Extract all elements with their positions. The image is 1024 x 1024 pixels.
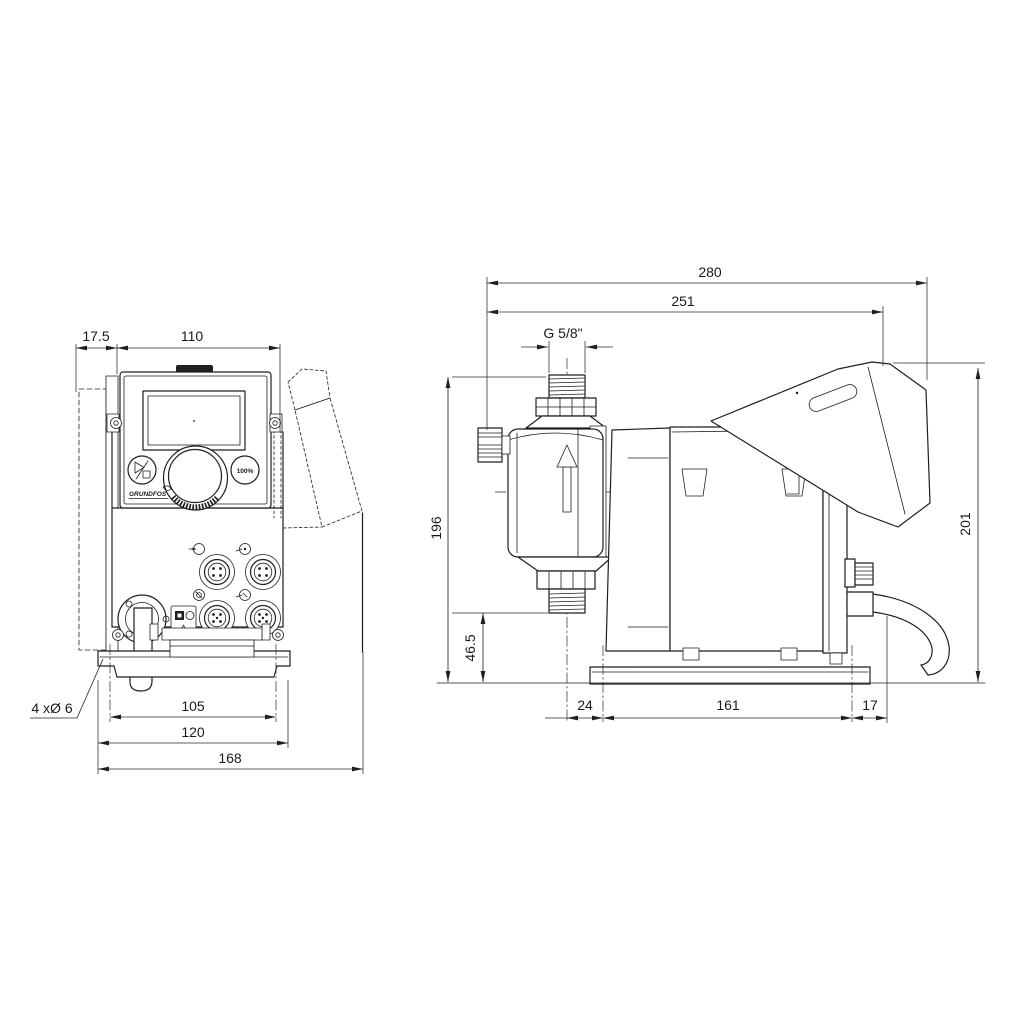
connector-top-right: [246, 555, 281, 590]
click-wheel: [164, 446, 228, 510]
dim-label-201: 201: [957, 512, 973, 536]
dim-hole-spacing: 105: [110, 698, 276, 717]
foot: [781, 648, 797, 660]
corner-screw-icon: [273, 630, 284, 641]
dim-label-251: 251: [671, 293, 695, 309]
connector-icon-3: [194, 590, 205, 601]
dim-label-24: 24: [577, 697, 593, 713]
start-stop-button: [128, 456, 156, 484]
dim-base-depth: 161: [603, 697, 852, 718]
power-cable-side: [873, 594, 949, 675]
outlet-union-nut: [537, 571, 595, 589]
dim-outlet-height: 46.5: [452, 613, 548, 682]
dimensional-drawing-page: 100% GRUNDFOS: [0, 0, 1024, 1024]
front-view: 100% GRUNDFOS: [79, 365, 363, 722]
dim-label-105: 105: [181, 698, 205, 714]
note-mounting-holes: 4 xØ 6: [30, 659, 103, 718]
dim-label-168: 168: [218, 750, 242, 766]
connector-top-left: [200, 555, 235, 590]
dim-label-110: 110: [181, 328, 204, 344]
technical-drawing: 100% GRUNDFOS: [0, 0, 1024, 1024]
screw-right-icon: [270, 418, 281, 429]
dim-label-17: 17: [862, 697, 878, 713]
wall-plate-outline: [79, 389, 106, 650]
max-capacity-label: 100%: [237, 468, 254, 475]
screw-left-icon: [111, 418, 122, 429]
dim-label-holes: 4 xØ 6: [31, 700, 72, 716]
dim-base-plate-width: 120: [98, 680, 288, 748]
foot: [683, 648, 699, 660]
side-view: [437, 358, 985, 722]
brand-text: GRUNDFOS: [129, 491, 167, 498]
dim-label-120: 120: [181, 724, 205, 740]
cable-gland: [845, 559, 949, 675]
strain-relief: [847, 592, 873, 616]
control-panel: 100% GRUNDFOS: [107, 365, 282, 510]
outlet-neck: [518, 557, 612, 571]
priming-knob: [478, 428, 510, 462]
corner-screw-icon: [113, 630, 124, 641]
dim-base-to-rear: 17: [852, 697, 887, 718]
dim-label-46-5: 46.5: [462, 634, 478, 661]
inlet-thread: [526, 375, 606, 428]
dim-label-thread: G 5/8": [543, 325, 582, 341]
dosing-head-side: [478, 426, 612, 613]
max-capacity-button: 100%: [231, 456, 259, 484]
dim-label-196: 196: [428, 516, 444, 540]
dim-label-17-5: 17.5: [82, 328, 109, 344]
dim-label-280: 280: [698, 264, 722, 280]
dim-label-161: 161: [716, 697, 740, 713]
dosing-head-hidden-outline: [283, 369, 363, 652]
